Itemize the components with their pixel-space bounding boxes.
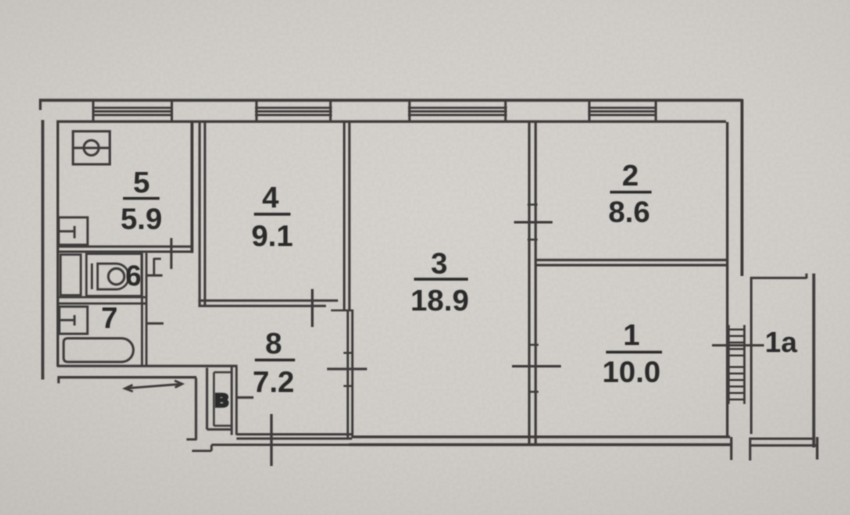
svg-text:2: 2 (622, 160, 639, 193)
svg-text:в: в (214, 386, 228, 412)
svg-text:8: 8 (265, 328, 282, 361)
svg-text:4: 4 (262, 181, 279, 214)
svg-text:9.1: 9.1 (251, 220, 293, 253)
svg-text:1: 1 (623, 319, 640, 352)
svg-text:5.9: 5.9 (120, 203, 162, 236)
svg-text:10.0: 10.0 (602, 356, 660, 389)
svg-text:7: 7 (101, 302, 118, 335)
svg-text:7.2: 7.2 (253, 366, 295, 399)
svg-text:5: 5 (133, 167, 150, 200)
svg-text:8.6: 8.6 (608, 196, 650, 229)
svg-text:18.9: 18.9 (411, 285, 469, 318)
svg-text:6: 6 (125, 261, 141, 293)
svg-text:3: 3 (431, 248, 448, 281)
svg-text:1а: 1а (765, 327, 798, 359)
